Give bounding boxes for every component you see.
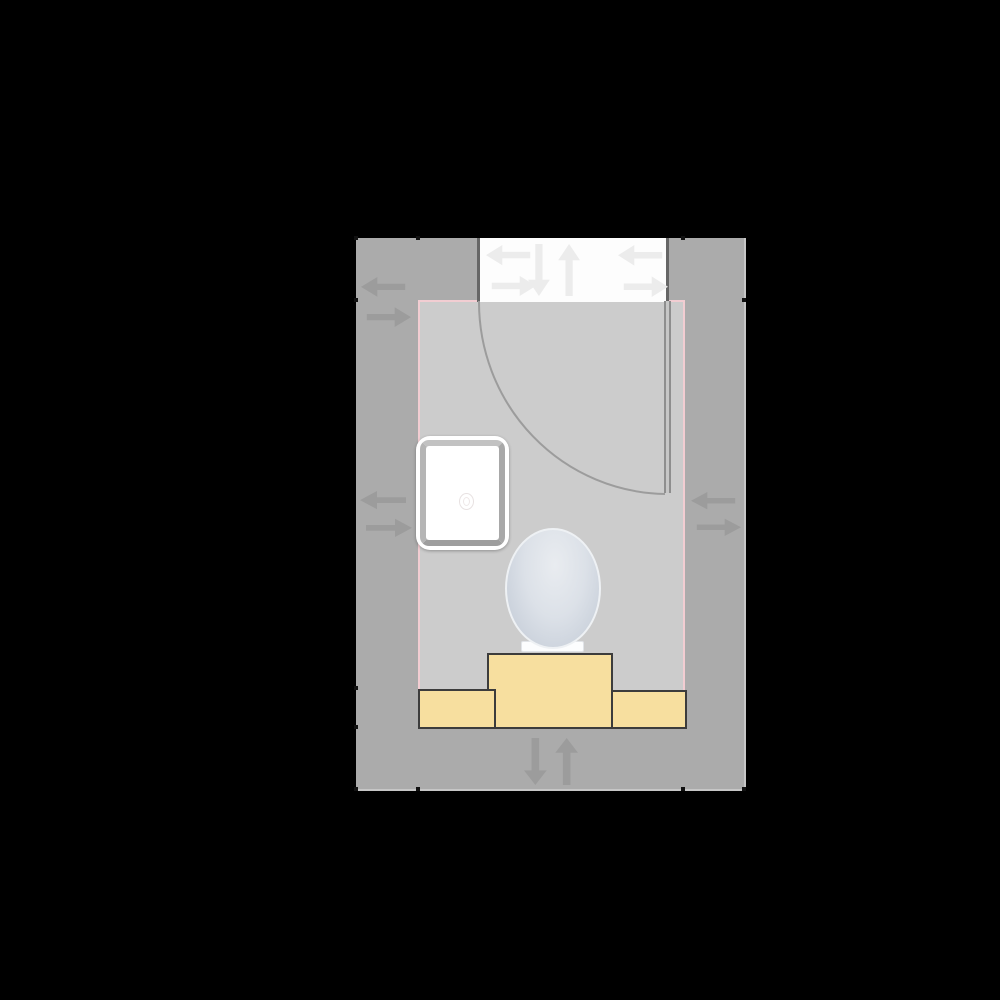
door-flip-right-control[interactable] [618,245,668,297]
swap-vertical-icon [524,738,578,785]
swap-horizontal-icon [361,277,411,327]
swap-horizontal-icon [360,491,412,537]
wall-right-middle-flip-control[interactable] [691,492,741,536]
door-leaf[interactable] [664,301,671,493]
wall-endpoint-tick [416,787,420,791]
toilet[interactable] [505,528,601,649]
wall-left-middle-flip-control[interactable] [360,491,412,537]
door-opening[interactable] [477,238,669,302]
wall-endpoint-tick [742,298,746,302]
swap-horizontal-icon [691,492,741,536]
wall-endpoint-tick [354,686,358,690]
drain-icon [459,493,474,510]
wall-endpoint-tick [742,787,746,791]
shower-tray[interactable] [416,436,509,550]
door-flip-vertical-control[interactable] [528,244,580,296]
wall-endpoint-tick [681,236,685,240]
cabinet-center[interactable] [487,653,613,729]
swap-horizontal-icon [618,245,668,297]
wall-left-upper-flip-control[interactable] [361,277,411,327]
shower-basin [420,440,505,546]
wall-endpoint-tick [354,725,358,729]
cabinet-left[interactable] [418,689,496,729]
wall-endpoint-tick [416,236,420,240]
floorplan-canvas [0,0,1000,1000]
cabinet-right[interactable] [611,690,687,729]
wall-bottom-flip-control[interactable] [524,738,578,785]
swap-vertical-icon [528,244,580,296]
wall-endpoint-tick [681,787,685,791]
wall-endpoint-tick [354,236,358,240]
wall-endpoint-tick [354,298,358,302]
wall-endpoint-tick [354,787,358,791]
